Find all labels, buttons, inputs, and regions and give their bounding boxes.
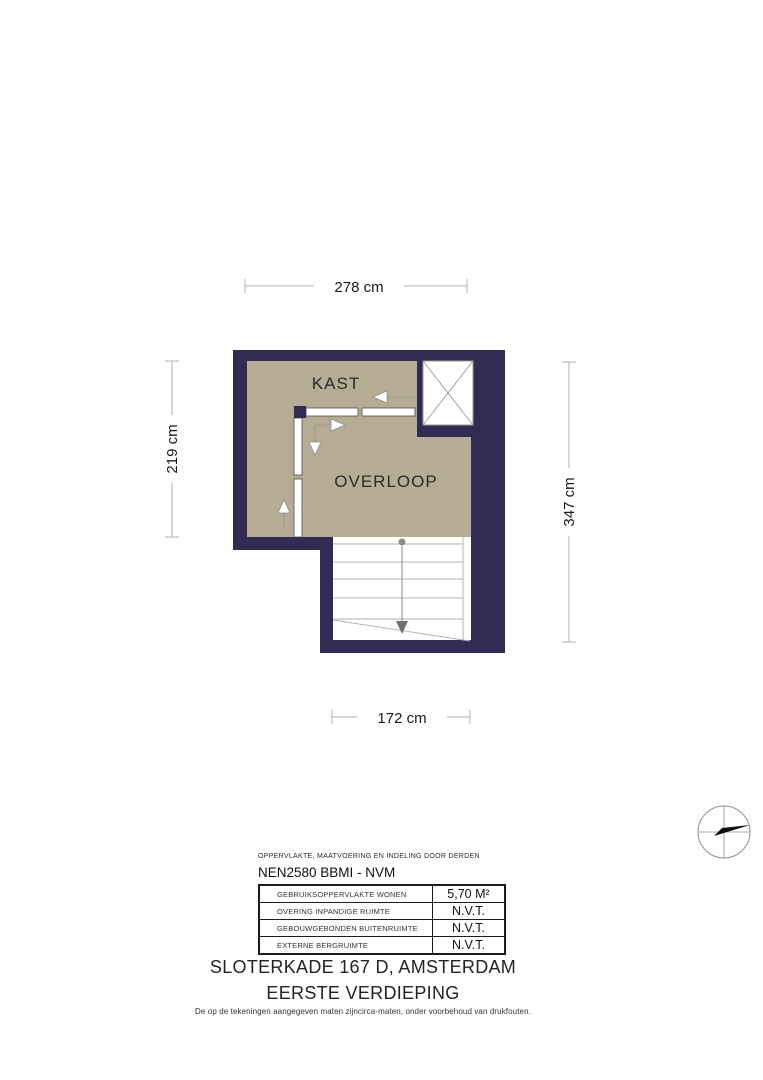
compass-rose-icon	[698, 806, 750, 858]
measurement-legend: OPPERVLAKTE, MAATVOERING EN INDELING DOO…	[258, 853, 498, 955]
dimension-bottom-label: 172 cm	[377, 710, 426, 727]
table-row: OVERING INPANDIGE RUIMTE N.V.T.	[259, 903, 505, 920]
row-label: OVERING INPANDIGE RUIMTE	[259, 903, 433, 920]
room-label-kast: KAST	[312, 374, 360, 393]
dimension-right-label: 347 cm	[561, 477, 578, 526]
dimension-top: 278 cm	[245, 277, 467, 296]
footer: SLOTERKADE 167 D, AMSTERDAM EERSTE VERDI…	[0, 956, 726, 1016]
dimension-left-label: 219 cm	[164, 424, 181, 473]
dimension-right: 347 cm	[560, 362, 578, 642]
nen2580-table: GEBRUIKSOPPERVLAKTE WONEN 5,70 M² OVERIN…	[258, 884, 506, 955]
staircase	[333, 537, 471, 641]
row-value: N.V.T.	[433, 920, 506, 937]
dimension-bottom: 172 cm	[332, 708, 470, 727]
row-value: N.V.T.	[433, 903, 506, 920]
row-value: 5,70 M²	[433, 885, 506, 903]
row-label: GEBOUWGEBONDEN BUITENRUIMTE	[259, 920, 433, 937]
address-title: SLOTERKADE 167 D, AMSTERDAM	[0, 956, 726, 978]
legend-standard-title: NEN2580 BBMI - NVM	[258, 865, 498, 880]
floor-title: EERSTE VERDIEPING	[0, 982, 726, 1004]
room-label-overloop: OVERLOOP	[334, 472, 437, 491]
row-label: EXTERNE BERGRUIMTE	[259, 937, 433, 955]
table-row: EXTERNE BERGRUIMTE N.V.T.	[259, 937, 505, 955]
table-row: GEBRUIKSOPPERVLAKTE WONEN 5,70 M²	[259, 885, 505, 903]
legend-header: OPPERVLAKTE, MAATVOERING EN INDELING DOO…	[258, 853, 498, 860]
disclaimer-text: De op de tekeningen aangegeven maten zij…	[0, 1007, 726, 1016]
shaft-void-icon	[423, 361, 473, 425]
row-label: GEBRUIKSOPPERVLAKTE WONEN	[259, 885, 433, 903]
table-row: GEBOUWGEBONDEN BUITENRUIMTE N.V.T.	[259, 920, 505, 937]
row-value: N.V.T.	[433, 937, 506, 955]
dimension-top-label: 278 cm	[334, 279, 383, 296]
floorplan-page: KAST OVERLOOP 278 cm 219 cm	[0, 0, 763, 1080]
dimension-left: 219 cm	[163, 361, 181, 537]
